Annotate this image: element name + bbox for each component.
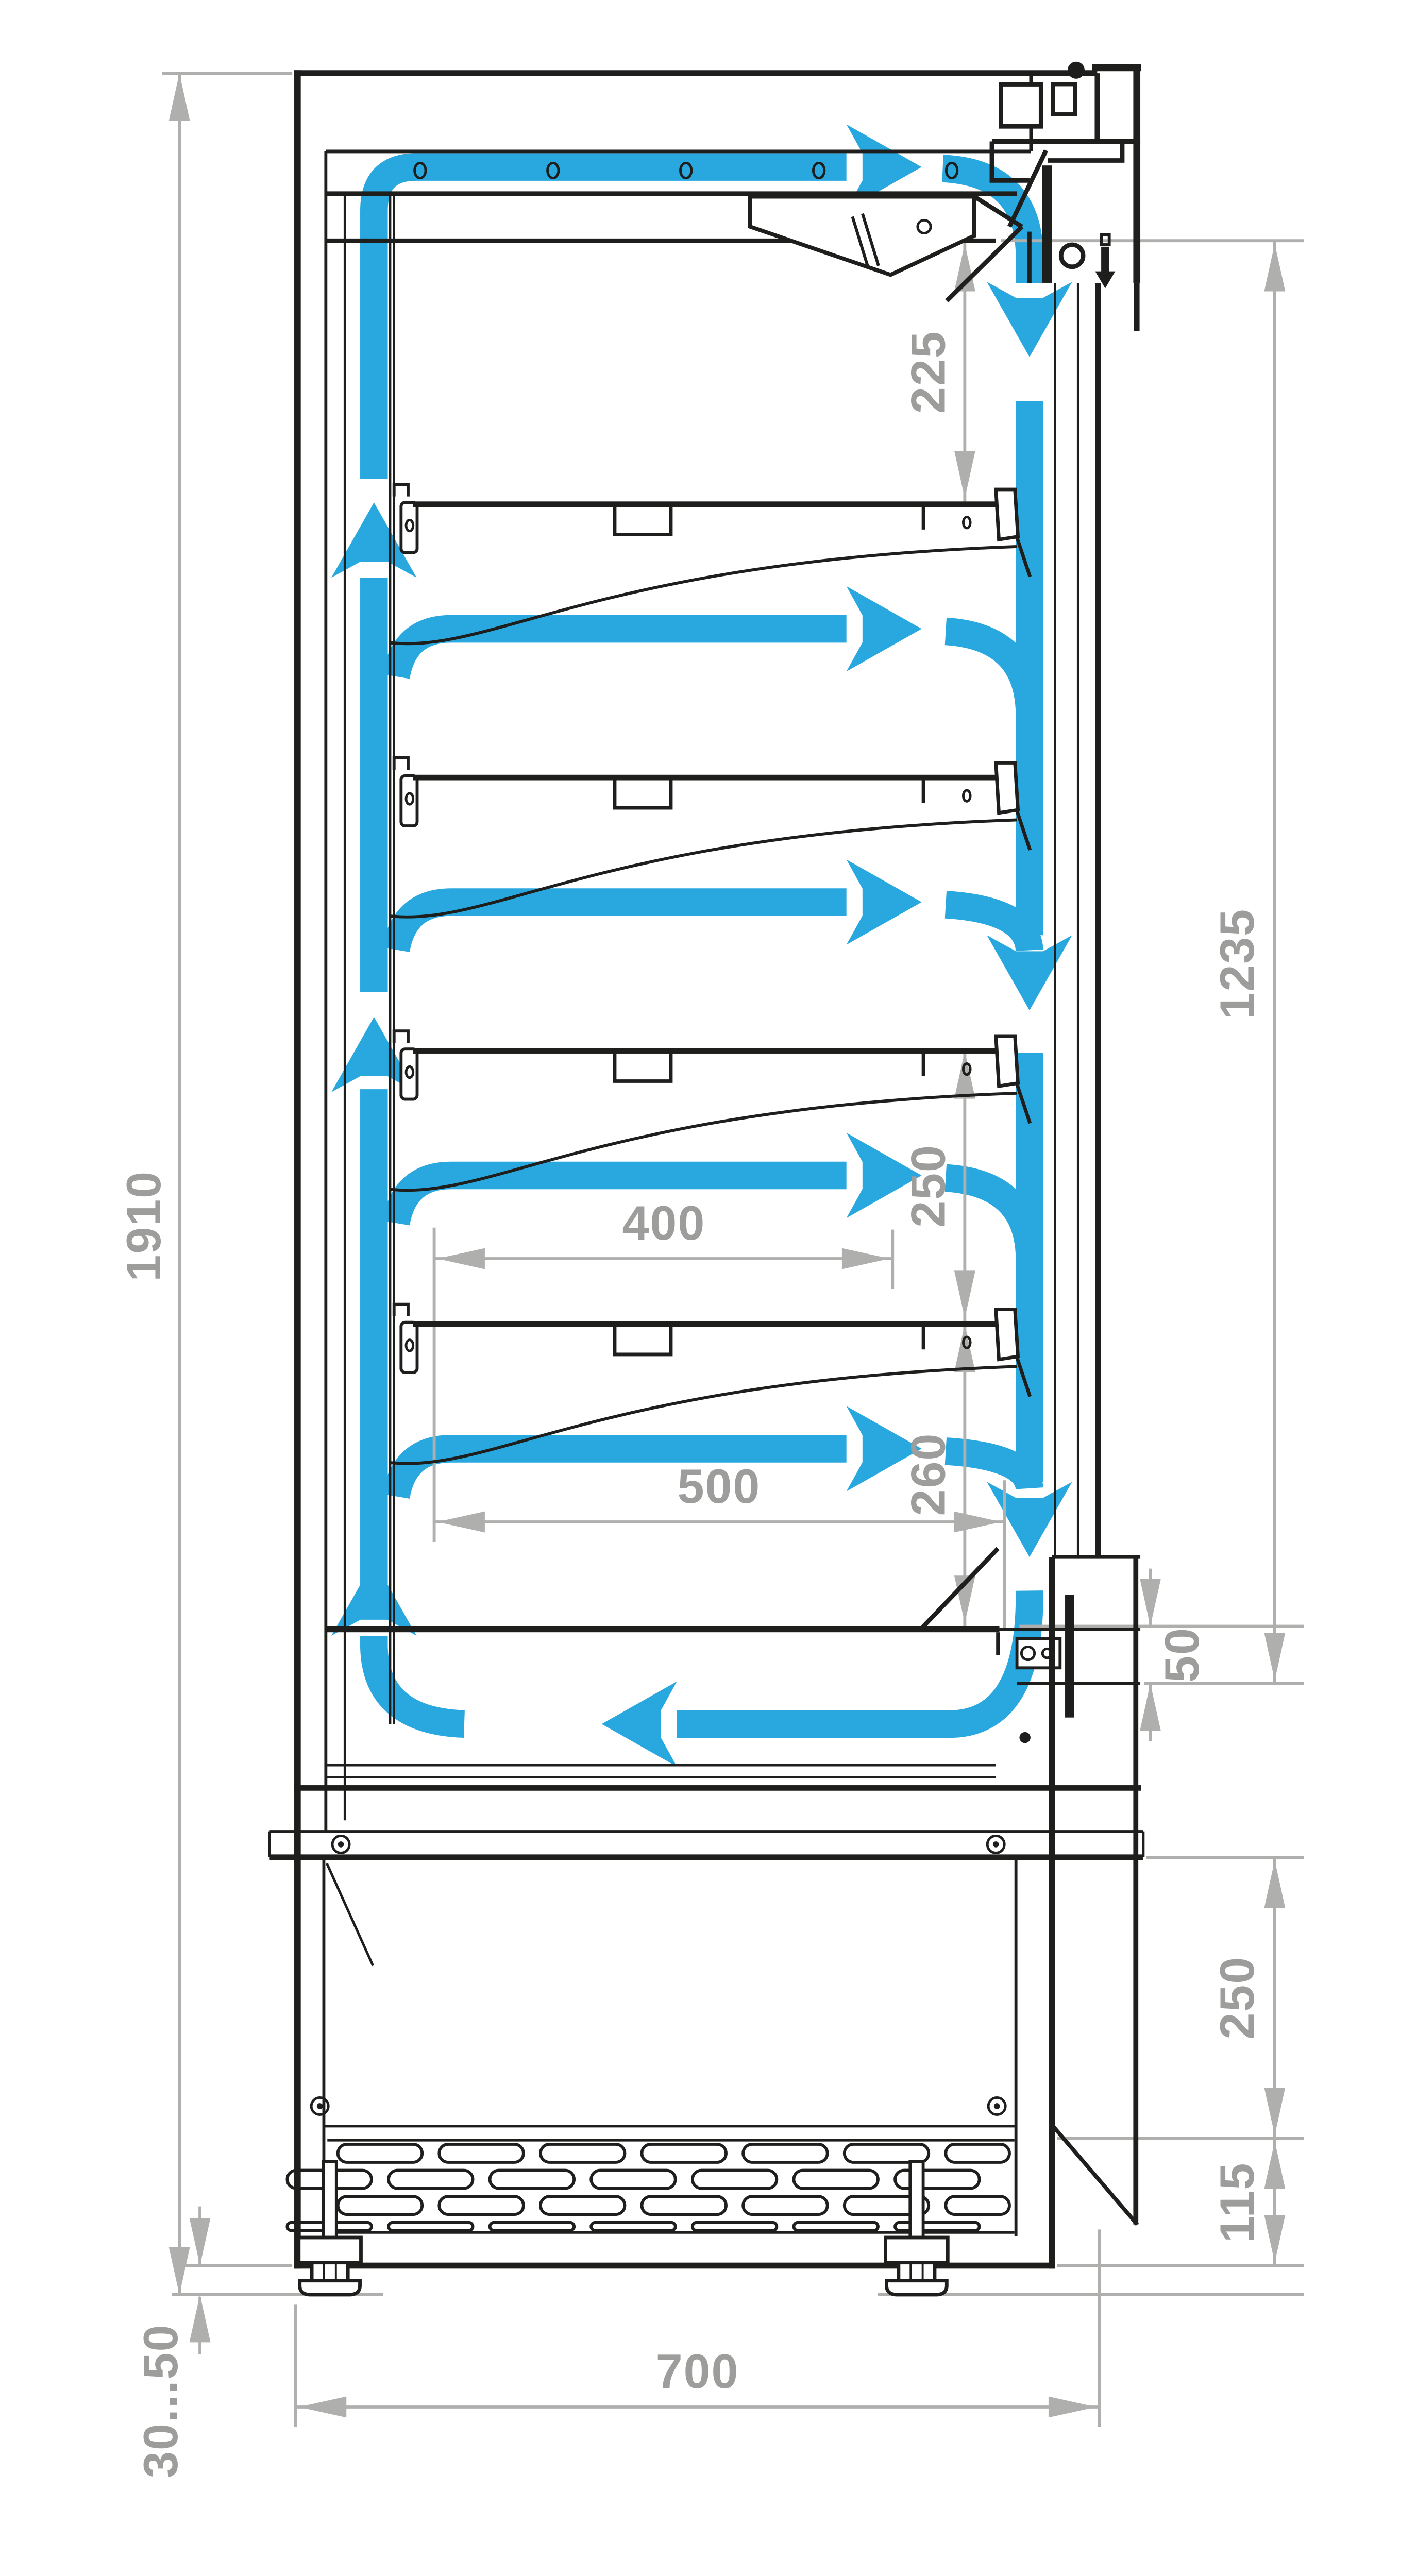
- louver-slot: [895, 2171, 980, 2189]
- shelf-hole: [963, 790, 970, 801]
- louver-slot: [541, 2144, 625, 2162]
- louver-slot: [642, 2144, 727, 2162]
- dim-arrowhead: [954, 1512, 1001, 1533]
- machine-top-panel: [269, 1854, 1143, 1860]
- louver-slot: [743, 2196, 828, 2214]
- adjustable-feet: [299, 2161, 948, 2295]
- dim-label-shelf-spacing: 250: [901, 1144, 955, 1228]
- front-top-rail-outer: [1133, 70, 1140, 283]
- foot-pad: [300, 2281, 360, 2295]
- dim-label-overall-depth: 700: [656, 2344, 739, 2398]
- louver-slot: [541, 2196, 625, 2214]
- panel-screw-center: [338, 1841, 344, 1848]
- front-rail-bracket: [1042, 165, 1052, 283]
- shelf-hook: [394, 758, 408, 770]
- dim-arrowhead: [1264, 1633, 1285, 1680]
- airflow-arrowhead: [847, 586, 922, 671]
- technical-drawing-page: 1910 225 250 260 400 500 1235 50 250 115…: [0, 0, 1417, 2576]
- dim-label-shelf-to-deck: 260: [901, 1433, 955, 1516]
- shelf-center-clip: [615, 781, 671, 808]
- cabinet-section-drawing: 1910 225 250 260 400 500 1235 50 250 115…: [0, 0, 1417, 2576]
- louver-slot: [338, 2196, 423, 2214]
- price-tag-rail: [996, 762, 1018, 812]
- dim-arrowhead: [954, 451, 975, 498]
- shelf-back-bracket: [401, 776, 417, 826]
- air-curtain-bend: [946, 905, 1030, 951]
- base-bottom: [294, 1785, 1141, 1791]
- dim-label-canopy-to-first-shelf: 225: [901, 330, 955, 414]
- louver-slot: [895, 2223, 980, 2231]
- shelf-hole: [963, 517, 970, 528]
- riser-duct-up-arrow: [374, 1636, 464, 1724]
- foot-bracket: [886, 2238, 948, 2263]
- air-deflector: [750, 197, 974, 275]
- shelf-hook: [394, 484, 408, 496]
- dim-label-overall-height: 1910: [116, 1171, 171, 1282]
- shelf-hook: [394, 1031, 408, 1043]
- dim-arrowhead: [1264, 2215, 1285, 2262]
- dim-arrowhead: [1264, 2141, 1285, 2189]
- machine-hatch: [327, 1863, 373, 1966]
- louver-slot: [642, 2196, 727, 2214]
- foot-nut: [899, 2263, 935, 2281]
- shelf-center-clip: [615, 507, 671, 535]
- return-air-arrow: [677, 1590, 1030, 1724]
- dim-arrowhead: [437, 1512, 484, 1533]
- louver-slot: [439, 2144, 524, 2162]
- shelf-center-clip: [615, 1054, 671, 1081]
- deck-deflector: [922, 1549, 998, 1629]
- dim-arrowhead: [954, 1270, 975, 1318]
- louver-slot: [794, 2171, 878, 2189]
- airflow-arrowhead: [602, 1682, 677, 1767]
- louver-slot: [389, 2171, 473, 2189]
- back-wall: [294, 70, 301, 2268]
- dim-label-foot-adjustment: 30...50: [133, 2324, 188, 2478]
- cabinet-top-panel: [294, 70, 1097, 76]
- louver-slot: [338, 2144, 423, 2162]
- dim-arrowhead: [1140, 1579, 1161, 1626]
- dim-arrowhead: [1140, 1683, 1161, 1731]
- machine-wall-front: [1049, 1557, 1055, 2268]
- deck-plate: [326, 1626, 999, 1633]
- fastener-arrow-glyph: [1095, 247, 1115, 289]
- louver-slot: [845, 2144, 929, 2162]
- dim-arrowhead: [1264, 2088, 1285, 2135]
- price-tag-rail: [996, 1036, 1018, 1086]
- louver-slot: [490, 2223, 575, 2231]
- foot-pad: [887, 2281, 947, 2295]
- shelf-plate: [413, 1048, 998, 1054]
- dim-arrowhead: [169, 2247, 190, 2294]
- louver-slot: [490, 2171, 575, 2189]
- dim-label-air-curtain-drop: 1235: [1210, 908, 1264, 1020]
- front-top-rail-notch: [1001, 84, 1041, 127]
- shelf-back-bracket: [401, 1323, 417, 1372]
- dim-label-louver-height: 115: [1210, 2162, 1264, 2243]
- dim-arrowhead: [190, 2295, 211, 2342]
- louver-slot: [946, 2144, 1009, 2162]
- dim-arrowhead: [842, 1248, 889, 1269]
- airflow-arrowhead: [847, 859, 922, 944]
- panel-screw-center: [993, 1841, 999, 1848]
- airflow-arrowhead: [987, 282, 1072, 357]
- front-lower-strut: [1053, 2126, 1138, 2225]
- shelf-plate: [413, 775, 998, 781]
- adjustable-foot: [299, 2161, 361, 2295]
- shelf-front-lip: [922, 1325, 925, 1350]
- shelf-front-lip: [922, 778, 925, 803]
- dim-label-deck-depth: 500: [678, 1459, 761, 1513]
- louver-slot: [693, 2223, 777, 2231]
- top-rail-lip: [1092, 64, 1141, 72]
- louver-slot: [693, 2171, 777, 2189]
- shelf-plate: [413, 1321, 998, 1327]
- foot-bracket: [299, 2238, 361, 2263]
- drain-fitting: [1019, 1732, 1030, 1743]
- dim-label-curtain-gap: 50: [1155, 1627, 1209, 1683]
- shelf-back-bracket: [401, 1049, 417, 1099]
- price-tag-rail: [996, 1309, 1018, 1359]
- louver-slot: [743, 2144, 828, 2162]
- front-lower-panel: [1133, 1557, 1138, 2225]
- shelf-hook: [394, 1304, 408, 1316]
- louver-slot: [946, 2196, 1009, 2214]
- front-top-rail-notch: [1053, 84, 1075, 114]
- louver-slot: [389, 2223, 473, 2231]
- dim-arrowhead: [190, 2218, 211, 2265]
- shelf-plate: [413, 501, 998, 507]
- shelf-front-lip: [922, 1051, 925, 1076]
- panel-screw-center: [994, 2103, 1000, 2109]
- airflow-arrowhead: [987, 1482, 1072, 1557]
- dim-label-machine-height: 250: [1210, 1956, 1264, 2040]
- ventilation-grille: [287, 2144, 1009, 2230]
- dim-arrowhead: [1049, 2397, 1096, 2418]
- shelf-center-clip: [615, 1327, 671, 1354]
- dim-arrowhead: [169, 73, 190, 121]
- dim-arrowhead: [299, 2397, 346, 2418]
- shelf-front-lip: [922, 504, 925, 530]
- dim-label-shelf-depth: 400: [622, 1196, 706, 1250]
- louver-slot: [591, 2223, 676, 2231]
- dim-arrowhead: [1264, 1860, 1285, 1908]
- dim-arrowhead: [1264, 244, 1285, 291]
- front-top-rail-profile: [1048, 141, 1122, 160]
- price-tag-rail: [996, 489, 1018, 539]
- shelf-back-bracket: [401, 502, 417, 552]
- louver-slot: [591, 2171, 676, 2189]
- dim-arrowhead: [437, 1248, 484, 1269]
- bottom-rail-bracket: [1065, 1595, 1074, 1717]
- louver-slot: [794, 2223, 878, 2231]
- foot-nut: [312, 2263, 348, 2281]
- top-rail-screw: [1068, 62, 1085, 79]
- panel-screw-center: [317, 2103, 323, 2109]
- fastener-eyelet: [1061, 245, 1083, 267]
- louver-slot: [439, 2196, 524, 2214]
